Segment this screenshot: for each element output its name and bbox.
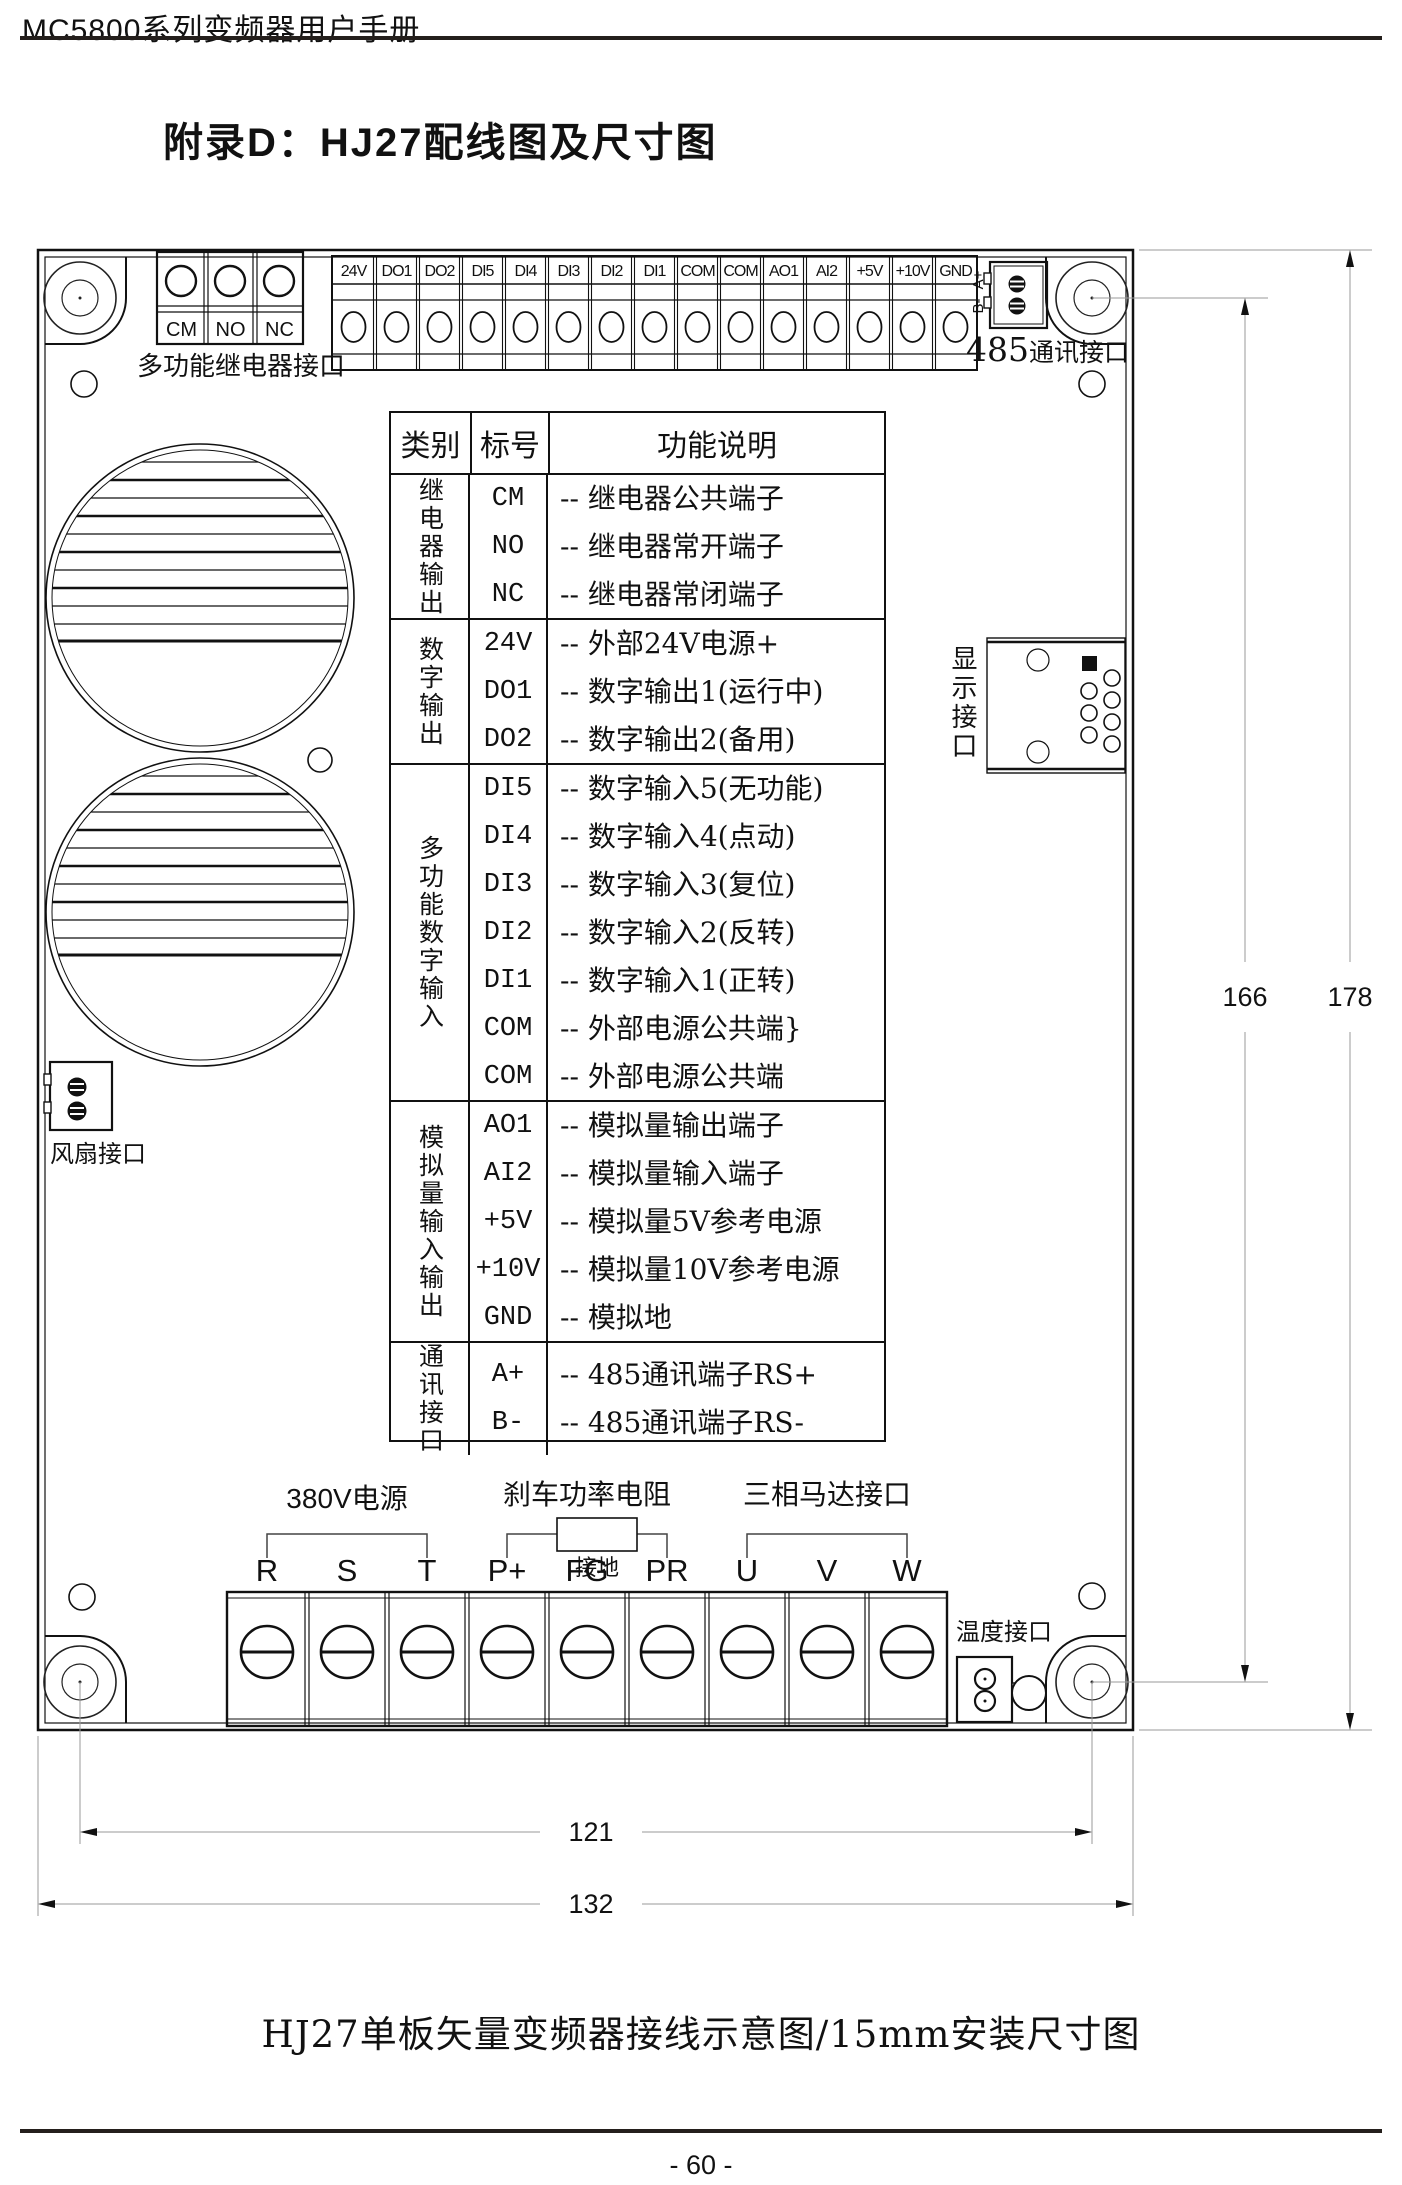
terminal-function-table: 类别 标号 功能说明 继电器输出 CM NO NC -- 继电器公共端子 -- … (389, 411, 886, 1442)
bottom-terminal-r: R (235, 1554, 299, 1588)
table-row-label: DO2 (470, 716, 546, 764)
manual-page: MC5800系列变频器用户手册 附录D：HJ27配线图及尺寸图 (0, 0, 1402, 2185)
table-row-label: DI3 (470, 861, 546, 909)
table-row-desc: -- 数字输入2(反转) (548, 909, 884, 957)
table-row-desc: -- 继电器公共端子 (548, 475, 884, 523)
top-terminal-do1: DO1 (375, 258, 418, 284)
top-terminal-di5: DI5 (461, 258, 504, 284)
table-header-row: 类别 标号 功能说明 (391, 413, 884, 475)
temperature-port-caption: 温度接口 (956, 1612, 1052, 1647)
table-header-description: 功能说明 (548, 413, 884, 473)
table-row-desc: -- 485通讯端子RS+ (548, 1351, 884, 1399)
top-terminal-24v: 24V (332, 258, 375, 284)
rs485-number: 485 (966, 330, 1029, 369)
bottom-terminal-fg: FG (555, 1554, 619, 1588)
footer-rule (20, 2129, 1382, 2133)
table-row-label: +10V (470, 1246, 546, 1294)
rs485-label: 通讯接口 (1029, 338, 1129, 367)
table-row-label: DI1 (470, 957, 546, 1005)
table-row-desc: -- 继电器常开端子 (548, 523, 884, 571)
table-row-desc: -- 数字输入1(正转) (548, 957, 884, 1005)
top-terminal-di3: DI3 (547, 258, 590, 284)
top-terminal-5v: +5V (848, 258, 891, 284)
rs485-connector (984, 262, 1047, 328)
category-label: 多功能数字输入 (412, 835, 448, 1031)
relay-terminal-nc: NC (255, 317, 304, 343)
table-row-label: AO1 (470, 1102, 546, 1150)
table-group-comm-port: 通讯接口 A+ B- -- 485通讯端子RS+ -- 485通讯端子RS- (391, 1343, 884, 1440)
table-row-desc: -- 继电器常闭端子 (548, 571, 884, 619)
top-terminal-10v: +10V (891, 258, 934, 284)
capacitor-2 (46, 758, 354, 1066)
table-row-desc: -- 数字输出1(运行中) (548, 668, 884, 716)
category-label: 数字输出 (412, 636, 448, 748)
table-row-desc: -- 数字输入3(复位) (548, 861, 884, 909)
table-row-desc: -- 485通讯端子RS- (548, 1399, 884, 1447)
dim-board-width: 132 (549, 1889, 633, 1919)
table-row-label: B- (470, 1399, 546, 1447)
table-row-label: +5V (470, 1198, 546, 1246)
figure-caption: HJ27单板矢量变频器接线示意图/15mm安装尺寸图 (0, 2004, 1402, 2058)
table-row-desc: -- 外部电源公共端 (548, 1053, 884, 1101)
bottom-terminal-pr: PR (635, 1554, 699, 1588)
table-row-desc: -- 外部电源公共端} (548, 1005, 884, 1053)
table-row-label: DI2 (470, 909, 546, 957)
category-label: 继电器输出 (412, 477, 448, 617)
bottom-terminal-w: W (875, 1554, 939, 1588)
relay-terminal-cm: CM (157, 317, 206, 343)
table-row-label: NO (470, 523, 546, 571)
category-label: 通讯接口 (412, 1343, 448, 1455)
brake-resistor-box (557, 1518, 637, 1551)
table-row-label: DI5 (470, 765, 546, 813)
table-header-category: 类别 (391, 413, 470, 473)
table-row-desc: -- 模拟量10V参考电源 (548, 1246, 884, 1294)
table-row-desc: -- 数字输出2(备用) (548, 716, 884, 764)
top-terminal-di2: DI2 (590, 258, 633, 284)
top-terminal-di1: DI1 (633, 258, 676, 284)
table-row-label: AI2 (470, 1150, 546, 1198)
capacitor-1 (46, 444, 354, 752)
dim-board-height: 178 (1308, 982, 1392, 1012)
table-row-label: GND (470, 1294, 546, 1342)
table-row-desc: -- 模拟地 (548, 1294, 884, 1342)
table-row-desc: -- 模拟量输入端子 (548, 1150, 884, 1198)
dim-hole-height: 166 (1203, 982, 1287, 1012)
table-row-label: DO1 (470, 668, 546, 716)
table-row-desc: -- 数字输入5(无功能) (548, 765, 884, 813)
table-row-label: COM (470, 1005, 546, 1053)
bottom-terminal-t: T (395, 1554, 459, 1588)
rs485-pin-b-label: B- (971, 289, 987, 323)
table-row-label: CM (470, 475, 546, 523)
top-terminal-com1: COM (676, 258, 719, 284)
motor-group-label: 三相马达接口 (707, 1478, 947, 1512)
category-label: 模拟量输入输出 (412, 1124, 448, 1320)
table-group-digital-output: 数字输出 24V DO1 DO2 -- 外部24V电源+ -- 数字输出1(运行… (391, 620, 884, 765)
table-row-label: COM (470, 1053, 546, 1101)
fan-connector (44, 1062, 112, 1130)
table-row-label: 24V (470, 620, 546, 668)
table-row-desc: -- 外部24V电源+ (548, 620, 884, 668)
display-port-caption: 显示接口 (944, 645, 981, 770)
fan-port-caption: 风扇接口 (50, 1134, 146, 1169)
brake-group-label: 刹车功率电阻 (467, 1478, 707, 1512)
relay-terminal-no: NO (206, 317, 255, 343)
table-row-label: NC (470, 571, 546, 619)
dim-hole-width: 121 (549, 1817, 633, 1847)
top-terminal-di4: DI4 (504, 258, 547, 284)
bottom-terminal-u: U (715, 1554, 779, 1588)
bottom-terminal-s: S (315, 1554, 379, 1588)
bottom-terminal-strip (227, 1592, 947, 1726)
display-connector (987, 638, 1125, 773)
table-row-desc: -- 模拟量5V参考电源 (548, 1198, 884, 1246)
bottom-terminal-v: V (795, 1554, 859, 1588)
top-terminal-ao1: AO1 (762, 258, 805, 284)
relay-port-caption: 多功能继电器接口 (137, 346, 345, 383)
table-row-label: A+ (470, 1351, 546, 1399)
table-group-analog-io: 模拟量输入输出 AO1 AI2 +5V +10V GND -- 模拟量输出端子 … (391, 1102, 884, 1343)
table-header-label: 标号 (470, 413, 548, 473)
table-row-desc: -- 模拟量输出端子 (548, 1102, 884, 1150)
page-number: - 60 - (0, 2150, 1402, 2181)
top-terminal-do2: DO2 (418, 258, 461, 284)
rs485-port-caption: 485通讯接口 (966, 330, 1129, 369)
power-group-label: 380V电源 (247, 1482, 447, 1516)
top-terminal-com2: COM (719, 258, 762, 284)
temperature-connector (957, 1657, 1046, 1722)
table-row-label: DI4 (470, 813, 546, 861)
top-terminal-ai2: AI2 (805, 258, 848, 284)
mounting-hole-top-left (44, 262, 116, 334)
table-row-desc: -- 数字输入4(点动) (548, 813, 884, 861)
table-group-relay-output: 继电器输出 CM NO NC -- 继电器公共端子 -- 继电器常开端子 -- … (391, 475, 884, 620)
bottom-terminal-pplus: P+ (475, 1554, 539, 1588)
table-group-digital-input: 多功能数字输入 DI5 DI4 DI3 DI2 DI1 COM COM -- 数… (391, 765, 884, 1102)
